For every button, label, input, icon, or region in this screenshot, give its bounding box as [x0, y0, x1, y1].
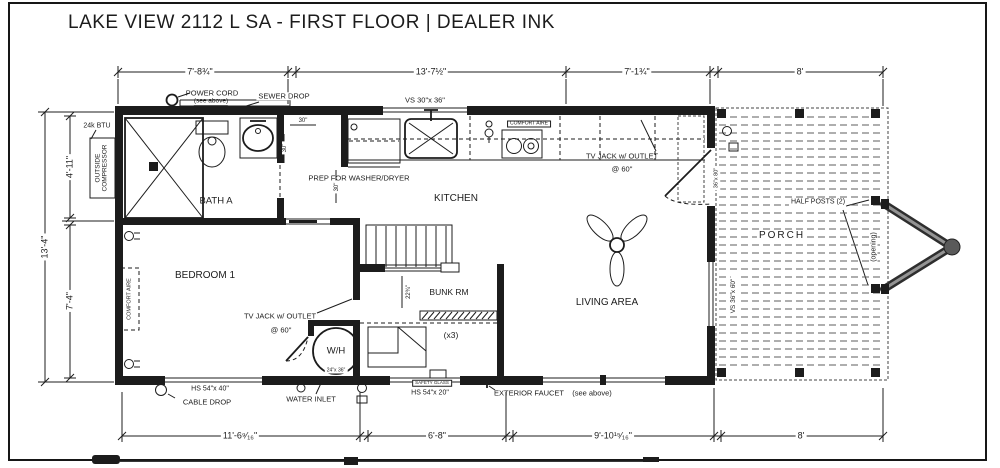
dim-left-lower: 7'-4" [66, 290, 75, 312]
faucet-icon [486, 121, 492, 127]
dim-bottom-4: 8' [796, 432, 807, 441]
prep-washer-dryer-label: PREP FOR WASHER/DRYER [308, 174, 409, 182]
safety-glass-label: SAFETY GLASS [412, 380, 452, 387]
tv-jack-living-label: TV JACK w/ OUTLET [586, 152, 658, 160]
dim-bottom-3: 9'-10¹⁵⁄₁₆" [592, 432, 634, 441]
cable-drop-icon [156, 385, 167, 396]
room-label-living: LIVING AREA [576, 298, 638, 308]
dim-prep-gap: 30" [334, 181, 340, 194]
dim-bottom-1: 11'-6⁹⁄₁₆" [221, 432, 259, 441]
porch-light-icon [723, 127, 732, 136]
dim-prep-width: 30" [297, 118, 310, 124]
room-label-bunk: BUNK RM [429, 288, 468, 297]
room-label-porch: PORCH [757, 231, 807, 241]
water-heater-label: W/H [327, 346, 345, 356]
kitchen-window-label: VS 30"x 36" [403, 96, 447, 104]
tv-jack-living-height: @ 60" [612, 165, 633, 173]
comfort-aire-bedroom-label: COMFORT AIRE [127, 278, 133, 320]
outlet-icon [125, 232, 134, 241]
dim-bottom-2: 6'-8" [426, 432, 448, 441]
dim-top-2: 13'-7½" [414, 68, 448, 77]
water-inlet-icon [297, 384, 305, 392]
floorplan-linework [0, 0, 1000, 468]
bunk-bed-icon [368, 327, 426, 367]
exterior-faucet-label: EXTERIOR FAUCET [494, 389, 564, 397]
toilet-icon [196, 121, 228, 134]
power-cord-note: (see above) [194, 98, 228, 106]
leader-lines [168, 120, 869, 398]
outlet-icon [125, 360, 134, 369]
dim-top-1: 7'-8¾" [185, 68, 214, 77]
dim-left-upper: 4'-11" [66, 154, 75, 180]
bunk-count-label: (x3) [444, 331, 459, 340]
room-label-bath: BATH A [199, 196, 232, 206]
water-heater-size-label: 24"x 36" [325, 369, 348, 374]
water-inlet-label: WATER INLET [286, 395, 336, 403]
dim-bunk-entry: 22¾" [406, 283, 412, 301]
outside-compressor-label: OUTSIDE COMPRESSOR [95, 139, 110, 197]
sewer-drop-label: SEWER DROP [256, 92, 311, 100]
trailer-hitch-icon [881, 199, 960, 294]
exterior-faucet-note: (see above) [572, 389, 612, 397]
room-label-kitchen: KITCHEN [434, 194, 478, 204]
comfort-aire-kitchen-label: COMFORT AIRE [507, 121, 551, 128]
dim-top-4: 8' [795, 68, 806, 77]
dim-prep-depth: 30" [282, 142, 288, 155]
bunk-window-label: HS 54"x 20" [411, 390, 449, 397]
windows [165, 108, 713, 385]
power-cord-label: POWER CORD [186, 89, 239, 97]
dim-left-overall: 13'-4" [41, 234, 50, 261]
ceiling-fan-icon [583, 211, 651, 286]
floorplan-sheet: LAKE VIEW 2112 L SA - FIRST FLOOR | DEAL… [0, 0, 1000, 468]
btu-label: 24k BTU [83, 123, 110, 130]
walls [115, 106, 715, 385]
vanity-sink-icon [240, 118, 277, 158]
entry-door-size-label: 36"x 80" [714, 166, 720, 190]
water-heater-closet [286, 328, 359, 374]
porch-opening-label: (opening) [871, 230, 878, 264]
tv-jack-bedroom-height: @ 60" [271, 326, 292, 334]
furnace-unit-icon [502, 130, 542, 158]
cable-drop-label: CABLE DROP [183, 398, 231, 406]
half-posts-label: HALF POSTS (2) [789, 199, 847, 206]
bedroom-window-label: HS 54"x 40" [191, 386, 229, 393]
drawing-title: LAKE VIEW 2112 L SA - FIRST FLOOR | DEAL… [68, 12, 555, 34]
power-cord-icon [167, 95, 178, 106]
porch-deck [716, 108, 888, 380]
living-window-label: VS 36"x 60" [731, 277, 738, 316]
dim-top-3: 7'-1¾" [622, 68, 651, 77]
room-label-bedroom: BEDROOM 1 [175, 271, 235, 281]
tv-jack-bedroom-label: TV JACK w/ OUTLET [244, 312, 316, 320]
